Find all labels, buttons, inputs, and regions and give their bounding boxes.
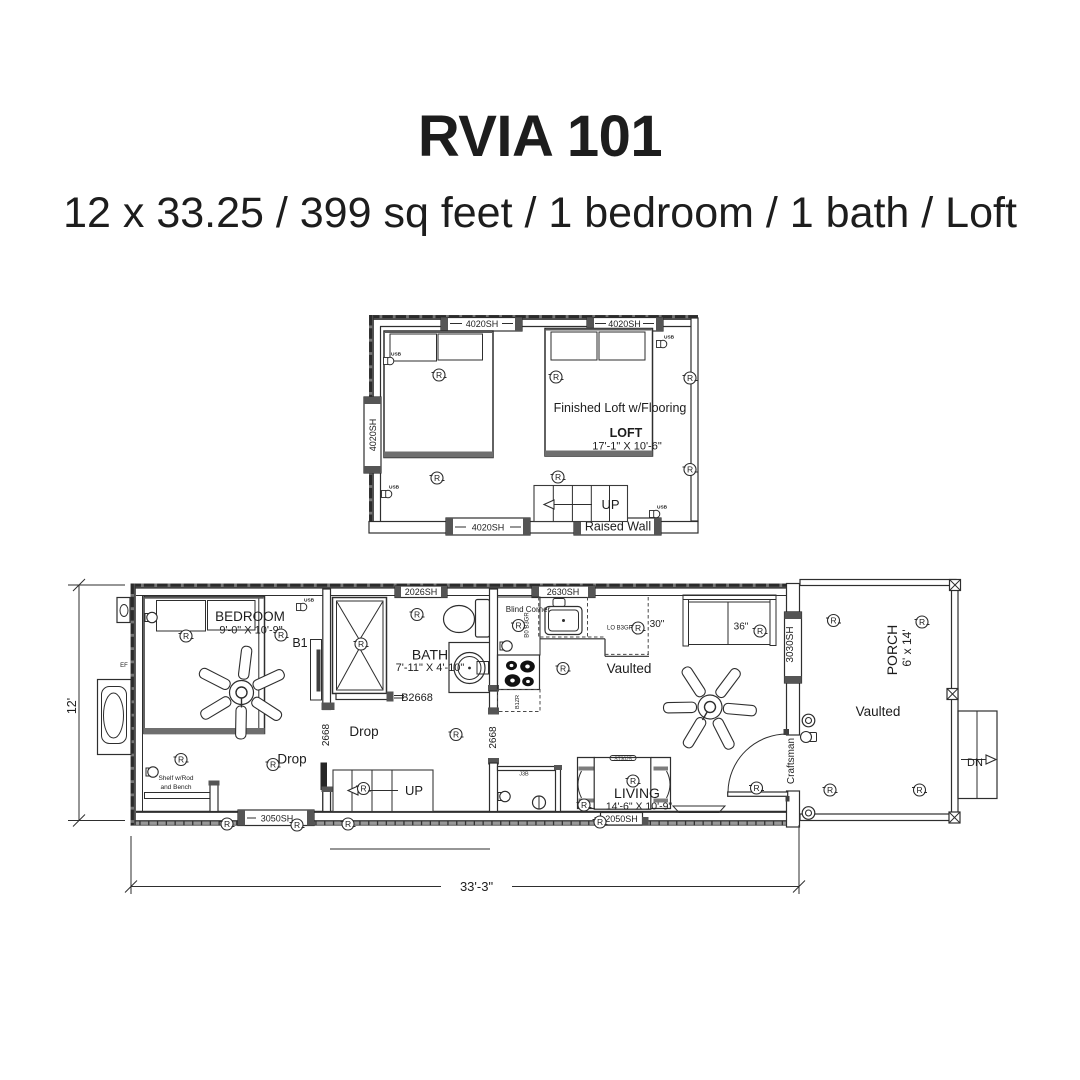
svg-text:and Bench: and Bench: [160, 784, 191, 791]
svg-text:12': 12': [65, 698, 79, 714]
svg-text:Vaulted: Vaulted: [607, 661, 652, 676]
svg-text:BEDROOM: BEDROOM: [215, 609, 285, 624]
svg-text:4020SH: 4020SH: [472, 523, 505, 533]
svg-text:36": 36": [734, 622, 749, 633]
svg-text:2630SH: 2630SH: [547, 587, 580, 597]
svg-text:4020SH: 4020SH: [368, 419, 378, 452]
svg-text:J3B: J3B: [519, 772, 529, 778]
svg-text:2050SH: 2050SH: [605, 814, 638, 824]
svg-text:Blind Corner: Blind Corner: [506, 605, 551, 614]
svg-text:LIVING: LIVING: [614, 785, 660, 801]
svg-text:33'-3": 33'-3": [460, 879, 494, 894]
svg-text:4020SH: 4020SH: [466, 319, 499, 329]
svg-text:3050SH: 3050SH: [261, 814, 294, 824]
svg-text:Finished Loft w/Flooring: Finished Loft w/Flooring: [554, 401, 687, 415]
svg-text:3030SH: 3030SH: [785, 626, 796, 662]
svg-text:Drop: Drop: [349, 724, 378, 739]
svg-text:17'-1" X 10'-6": 17'-1" X 10'-6": [592, 441, 662, 453]
svg-text:B2668: B2668: [401, 692, 433, 704]
svg-text:LOFT: LOFT: [610, 426, 643, 440]
svg-text:LO B3GR: LO B3GR: [607, 626, 634, 632]
svg-text:2668: 2668: [488, 726, 499, 749]
svg-text:UP: UP: [601, 497, 619, 512]
svg-text:4020SH: 4020SH: [608, 319, 641, 329]
svg-text:B0 B3GR: B0 B3GR: [525, 612, 531, 638]
svg-text:14'-6" X 10'-9": 14'-6" X 10'-9": [606, 801, 673, 813]
svg-text:EF: EF: [120, 663, 128, 669]
svg-text:DN: DN: [967, 757, 983, 769]
svg-text:2668: 2668: [321, 723, 332, 746]
svg-text:ST3025: ST3025: [614, 757, 632, 763]
svg-text:9'-0" X 10'-9": 9'-0" X 10'-9": [219, 625, 282, 637]
svg-text:Craftsman: Craftsman: [786, 738, 797, 784]
svg-text:RVIA 101: RVIA 101: [418, 104, 662, 169]
svg-text:Drop: Drop: [277, 752, 306, 767]
svg-text:UP: UP: [405, 783, 423, 798]
svg-text:2026SH: 2026SH: [405, 587, 438, 597]
svg-text:12 x 33.25 / 399 sq feet / 1 b: 12 x 33.25 / 399 sq feet / 1 bedroom / 1…: [63, 189, 1017, 237]
svg-text:PORCH: PORCH: [884, 625, 900, 676]
svg-text:B1: B1: [292, 636, 307, 650]
svg-text:Vaulted: Vaulted: [856, 704, 901, 719]
svg-text:6' x 14': 6' x 14': [900, 629, 914, 666]
svg-text:B1ZR: B1ZR: [515, 695, 521, 709]
svg-text:30": 30": [650, 619, 665, 630]
svg-text:Shelf w/Rod: Shelf w/Rod: [158, 775, 193, 782]
svg-text:BATH: BATH: [412, 647, 448, 663]
